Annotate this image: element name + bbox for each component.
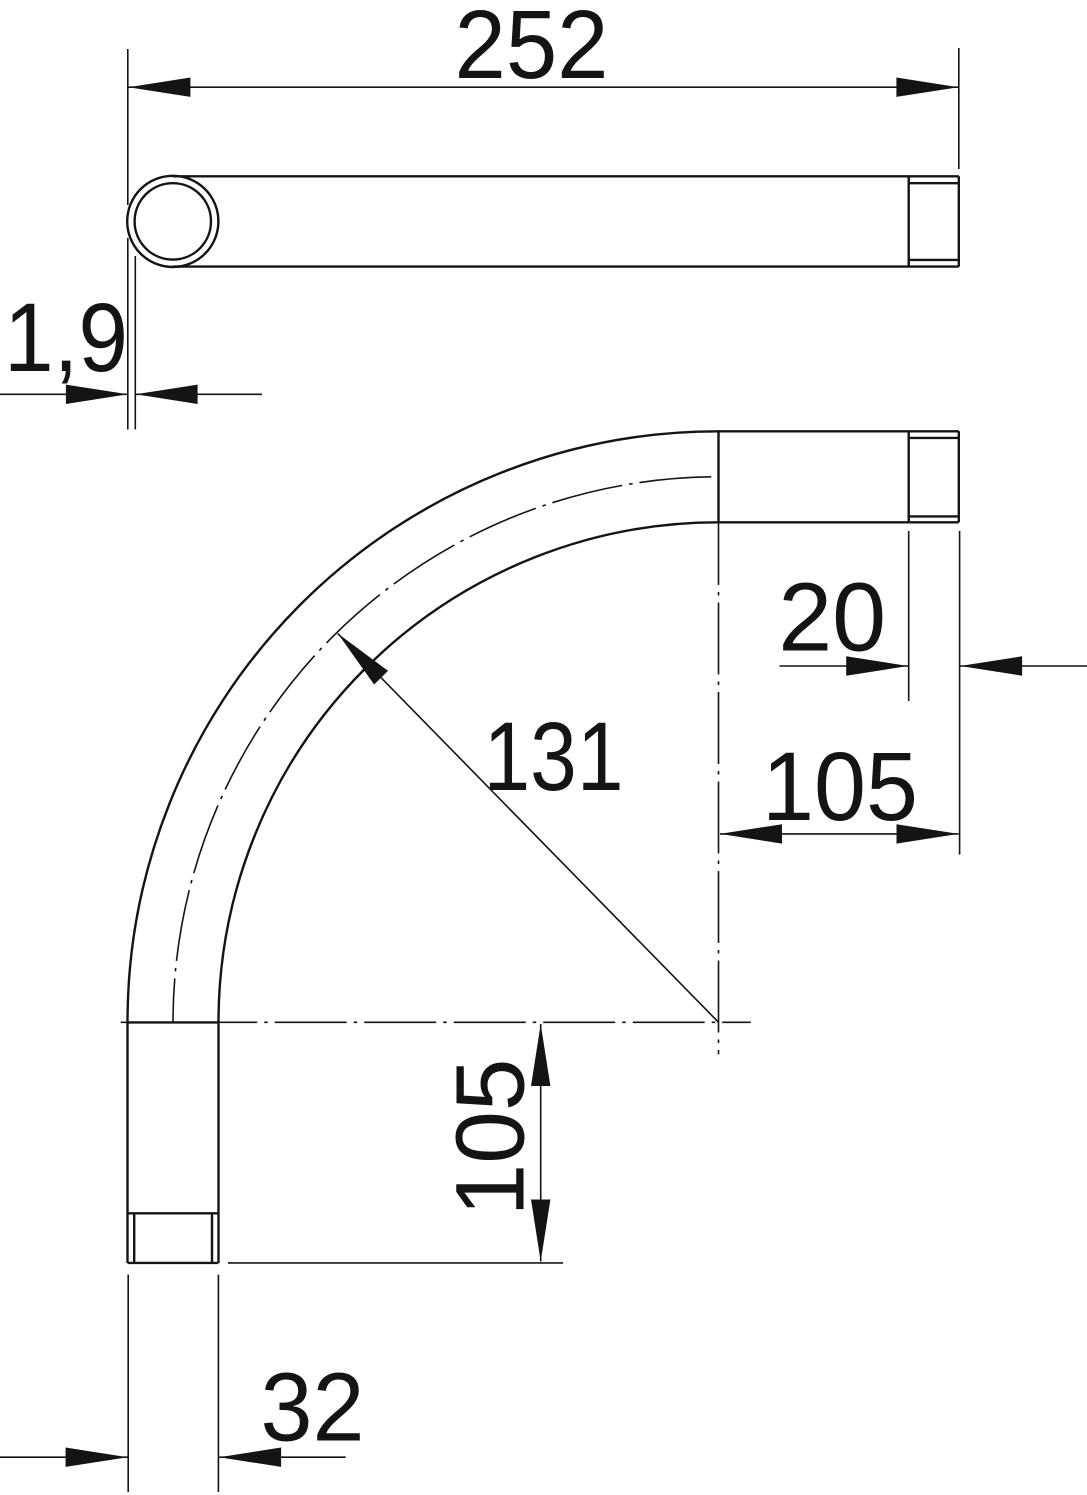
svg-text:131: 131 xyxy=(484,702,624,811)
svg-text:1,9: 1,9 xyxy=(4,283,128,392)
svg-text:105: 105 xyxy=(762,732,918,841)
svg-text:20: 20 xyxy=(778,563,886,672)
svg-text:105: 105 xyxy=(436,1058,545,1216)
svg-text:32: 32 xyxy=(261,1353,365,1462)
svg-text:252: 252 xyxy=(455,0,609,99)
